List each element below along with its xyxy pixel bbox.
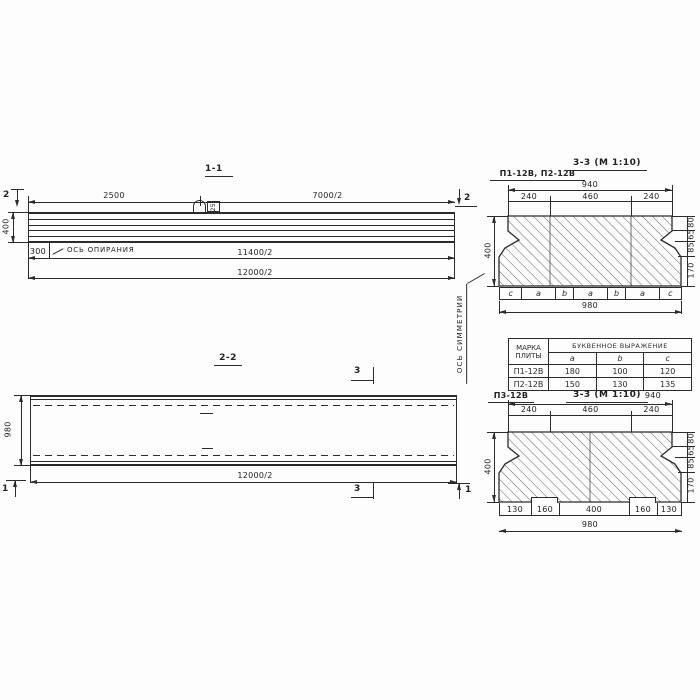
cut-mark [455,206,477,207]
cut-marker-2-left: 2 [3,191,10,201]
table-header-mark-line1: МАРКА [509,344,548,352]
plan-edge-line [30,399,457,400]
extension-line [454,243,455,279]
plan-right-edge [456,395,457,466]
plan-edge-line [30,461,457,462]
dim-tick [681,502,695,503]
cut-marker-1-left: 1 [2,485,9,495]
arrow [28,200,35,204]
hidden-line [33,455,454,456]
dim-line [30,482,457,483]
cut-marker-2-right: 2 [464,194,471,204]
loop-detail-label: 25 [211,203,218,211]
dim-line [21,395,22,466]
dim-130: 130 [657,506,681,515]
extension-line [672,185,673,216]
dim-940: 940 [545,181,635,190]
plan-bottom-edge [30,464,457,466]
arrow [508,402,515,406]
table-col-a: a [549,353,597,365]
arrow [457,198,461,205]
symmetry-axis-label: ОСЬ СИММЕТРИИ [457,284,467,384]
table-col-b: b [596,353,644,365]
arrow [499,529,506,533]
cell-a: 180 [549,365,597,378]
dim-tick [487,216,508,217]
cell-b: 130 [596,378,644,391]
cut-marker-3-bottom: 3 [354,485,361,495]
extension-line [28,196,29,212]
dim-line [28,202,455,203]
arrow [13,480,17,487]
arrow [457,483,461,490]
dim-tick [487,502,499,503]
drawing-sheet: 1-1 25 2500 7000/2 2 2 400 300 ОСЬ ОПИРА… [0,0,700,700]
dim-12000-2: 12000/2 [225,269,285,278]
arrow [492,495,496,502]
dim-460: 460 [550,406,631,415]
letter-a: a [625,288,658,299]
cut-mark [373,483,374,499]
dim-line [28,258,455,259]
beam-bottom-edge [28,241,455,243]
cell-c: 120 [644,365,692,378]
cut-mark [351,380,374,381]
cell-b: 100 [596,365,644,378]
dim-line [499,531,682,532]
dim-980: 980 [545,302,635,311]
arrow [448,256,455,260]
dim-160: 160 [629,506,657,515]
bottom-recess [531,497,558,503]
strand-line [28,225,455,226]
dim-line [28,278,455,279]
dim-line [494,432,495,502]
dim-240: 240 [508,193,550,202]
slab-marks-label: П1-12В, П2-12В [490,170,585,181]
arrow [15,200,19,207]
cell-mark: П2-12В [509,378,549,391]
arrow [492,432,496,439]
hidden-line [33,405,454,406]
cut-mark [373,367,374,384]
arrow [492,279,496,286]
letter-c: c [500,288,521,299]
cut-marker-3-top: 3 [354,367,361,377]
table-header-span: БУКВЕННОЕ ВЫРАЖЕНИЕ [549,339,692,353]
dim-line [499,515,682,516]
dim-130: 130 [499,506,531,515]
cut-mark [351,497,374,498]
beam-left-edge [28,212,29,243]
detail-mark [202,448,213,449]
strand-line [28,219,455,220]
arrow [665,402,672,406]
letter-c: c [659,288,681,299]
letter-dims-row: c a b a b a c [499,287,682,300]
arrow [19,395,23,402]
bearing-axis-label: ОСЬ ОПИРАНИЯ [67,247,134,255]
table-header-mark-line2: ПЛИТЫ [509,352,548,360]
beam-top-edge [28,212,455,214]
dim-980-plan: 980 [5,417,14,441]
dim-11400-2: 11400/2 [225,249,285,258]
letter-a: a [521,288,554,299]
cell-a: 150 [549,378,597,391]
dim-line [508,415,672,416]
letter-b: b [555,288,574,299]
strand-line [28,236,455,237]
dim-400: 400 [485,454,494,478]
arrow [19,459,23,466]
dim-tick [487,286,499,287]
cell-c: 135 [644,378,692,391]
table-header-mark: МАРКА ПЛИТЫ [509,339,549,365]
dim-12000-2-plan: 12000/2 [225,472,285,481]
table-row: П1-12В 180 100 120 [509,365,692,378]
dim-240: 240 [508,406,550,415]
slab-section-p1-p2 [499,216,681,286]
plan-top-edge [30,395,457,397]
dim-170: 170 [688,473,697,497]
extension-line [672,400,673,432]
table-row: П2-12В 150 130 135 [509,378,692,391]
arrow [499,310,506,314]
dim-240: 240 [631,193,672,202]
bottom-recess [629,497,656,503]
arrow [28,276,35,280]
dim-line [499,312,682,313]
dim-85: 85 [688,453,697,473]
dim-980: 980 [545,521,635,530]
arrow [30,480,37,484]
dim-tick [681,286,695,287]
dim-300: 300 [27,248,49,257]
dim-240: 240 [631,406,672,415]
cut-marker-1-right: 1 [465,486,472,496]
dim-160: 160 [531,506,559,515]
arrow [675,529,682,533]
arrow [675,310,682,314]
dim-170: 170 [688,258,697,282]
dim-line [494,216,495,286]
dim-85: 85 [688,237,697,257]
arrow [508,188,515,192]
extension-line [49,243,50,259]
arrow [448,200,455,204]
letter-b: b [607,288,626,299]
section-1-1-title: 1-1 [205,165,233,177]
beam-right-edge [454,212,455,243]
arrow [492,216,496,223]
dim-2500: 2500 [50,192,178,201]
letter-a: a [573,288,606,299]
arrow [448,276,455,280]
plan-left-edge [30,395,31,466]
cell-mark: П1-12В [509,365,549,378]
dim-line [508,190,672,191]
dim-400: 400 [485,238,494,262]
dim-400-beam: 400 [3,215,12,237]
dim-460: 460 [550,193,631,202]
arrow [665,188,672,192]
extension-line [200,196,201,206]
dim-940: 940 [636,392,670,401]
dim-7000-2: 7000/2 [215,192,440,201]
dim-400-bottom: 400 [559,506,629,515]
strand-line [28,230,455,231]
section-2-2-title: 2-2 [214,354,242,366]
marks-table: МАРКА ПЛИТЫ БУКВЕННОЕ ВЫРАЖЕНИЕ a b c П1… [508,338,692,391]
dim-tick [487,432,508,433]
table-col-c: c [644,353,692,365]
detail-mark [200,413,213,414]
